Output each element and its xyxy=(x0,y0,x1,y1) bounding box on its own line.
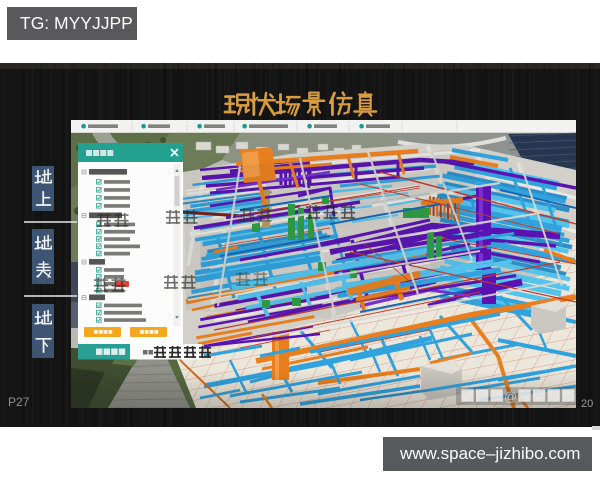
svg-text:@: @ xyxy=(504,389,517,404)
svg-text:TG: MYYJJPP: TG: MYYJJPP xyxy=(20,13,133,33)
svg-text:P27: P27 xyxy=(8,395,30,409)
svg-text:20: 20 xyxy=(581,398,593,410)
svg-text:www.space–jizhibo.com: www.space–jizhibo.com xyxy=(399,444,580,463)
